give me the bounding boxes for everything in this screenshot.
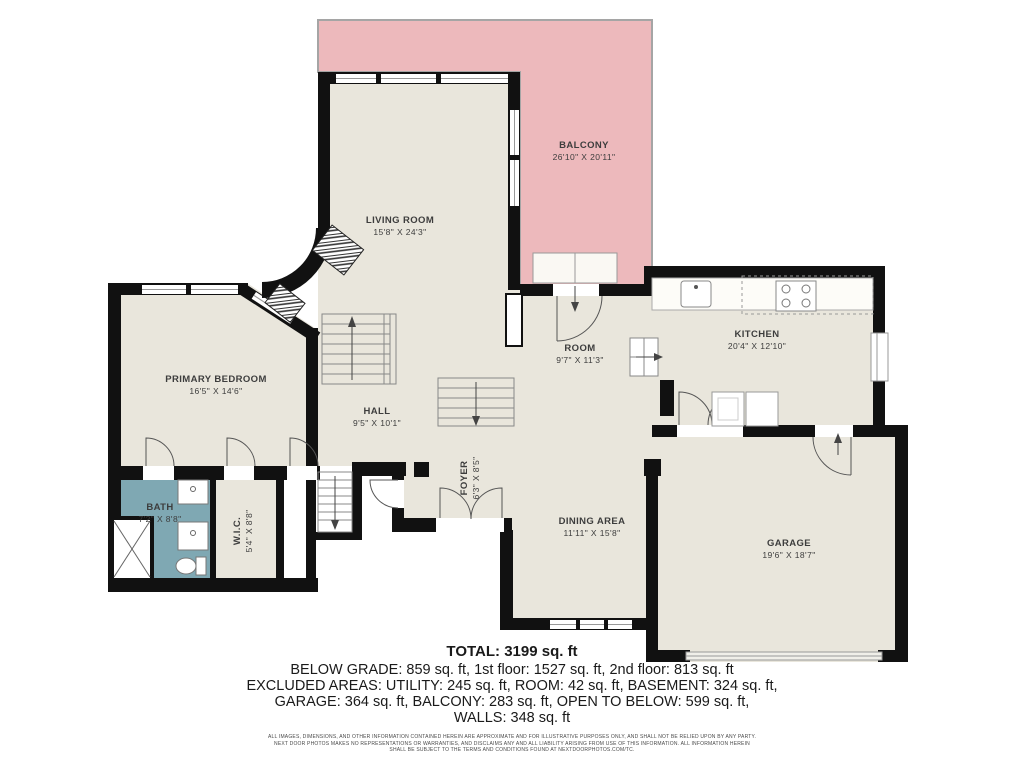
room-label-dining: DINING AREA 11'11" X 15'8" xyxy=(559,516,626,539)
appliance-icon xyxy=(746,392,778,426)
room-label-wic: W.I.C. 5'4" X 8'8" xyxy=(232,510,255,553)
room-label-hall: HALL 9'5" X 10'1" xyxy=(353,406,401,429)
summary-line: GARAGE: 364 sq. ft, BALCONY: 283 sq. ft,… xyxy=(0,694,1024,710)
toilet-icon xyxy=(196,557,206,575)
sink-icon xyxy=(681,281,711,307)
room-label-kitchen: KITCHEN 20'4" X 12'10" xyxy=(728,329,786,352)
floorplan-page: BALCONY 26'10" X 20'11" LIVING ROOM 15'8… xyxy=(0,0,1024,768)
summary-line: BELOW GRADE: 859 sq. ft, 1st floor: 1527… xyxy=(0,662,1024,678)
stove-icon xyxy=(776,281,816,311)
room-label-garage: GARAGE 19'6" X 18'7" xyxy=(762,538,815,561)
room-label-bath: BATH 7'2" X 8'8" xyxy=(139,502,182,525)
area-summary: TOTAL: 3199 sq. ft BELOW GRADE: 859 sq. … xyxy=(0,643,1024,754)
room-table xyxy=(630,338,663,376)
total-area-text: TOTAL: 3199 sq. ft xyxy=(0,643,1024,660)
summary-line: WALLS: 348 sq. ft xyxy=(0,710,1024,726)
summary-line: EXCLUDED AREAS: UTILITY: 245 sq. ft, ROO… xyxy=(0,678,1024,694)
appliance-icon xyxy=(712,392,744,426)
disclaimer-text: ALL IMAGES, DIMENSIONS, AND OTHER INFORM… xyxy=(0,734,1024,754)
room-label-foyer: FOYER 6'3" X 8'5" xyxy=(459,457,482,500)
room-label-primary-bedroom: PRIMARY BEDROOM 16'5" X 14'6" xyxy=(165,374,267,397)
room-label-living: LIVING ROOM 15'8" X 24'3" xyxy=(366,215,434,238)
room-label-balcony: BALCONY 26'10" X 20'11" xyxy=(553,140,616,163)
room-label-room: ROOM 9'7" X 11'3" xyxy=(556,343,603,366)
duct-shaft xyxy=(506,294,522,346)
